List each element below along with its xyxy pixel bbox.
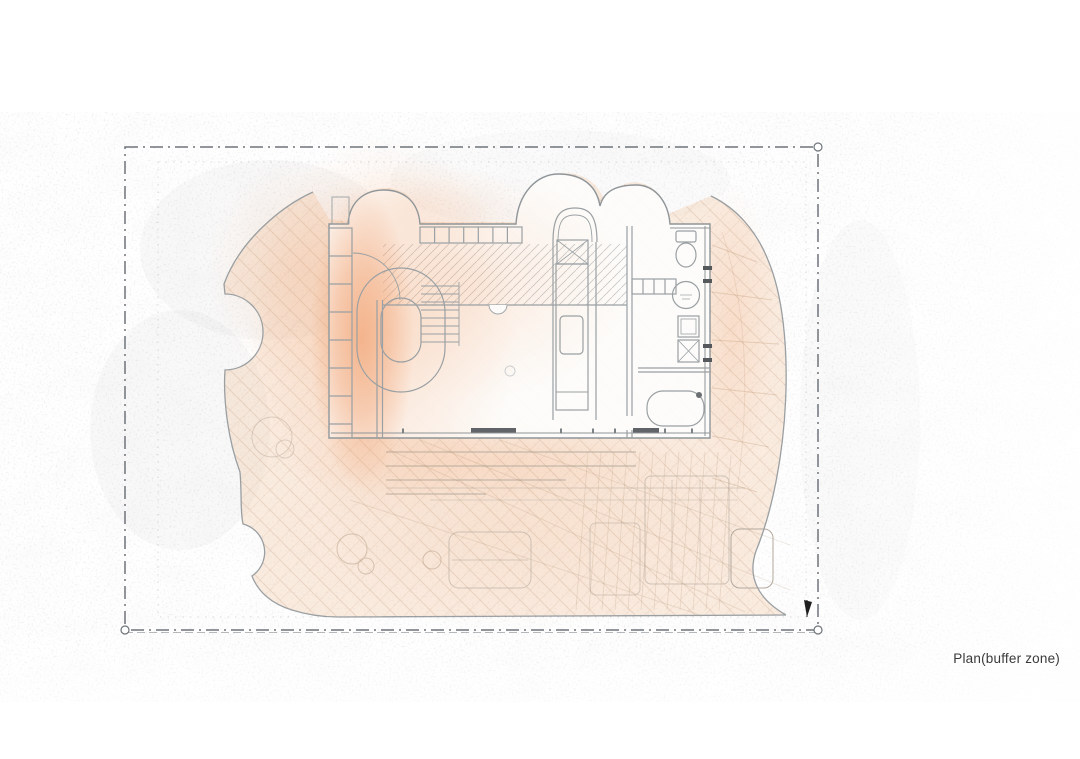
sliding-door-panel <box>633 428 659 433</box>
floor-plan-drawing <box>0 0 1080 759</box>
caption: Plan(buffer zone) <box>953 651 1060 666</box>
sliding-door-panel <box>471 428 516 433</box>
page: Plan(buffer zone) <box>0 0 1080 759</box>
